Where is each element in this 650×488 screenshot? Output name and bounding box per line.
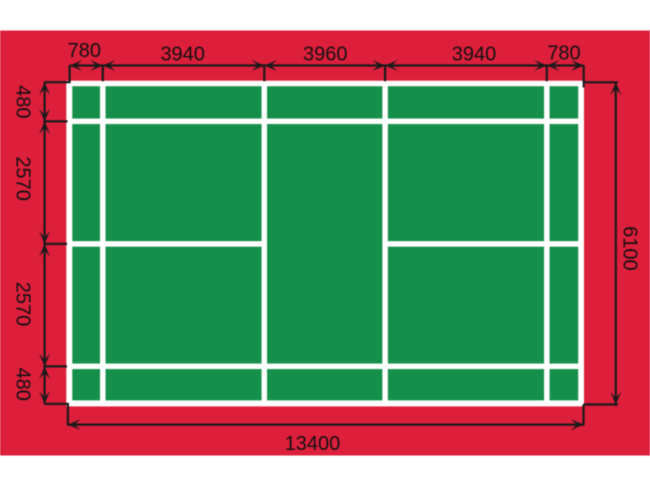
svg-text:3940: 3940 — [160, 44, 205, 66]
svg-text:3940: 3940 — [452, 44, 497, 66]
svg-text:780: 780 — [547, 43, 580, 65]
svg-text:480: 480 — [11, 368, 33, 401]
svg-text:6100: 6100 — [619, 226, 641, 271]
svg-text:2570: 2570 — [11, 282, 33, 327]
svg-text:3960: 3960 — [303, 44, 348, 66]
svg-text:2570: 2570 — [11, 156, 33, 201]
svg-text:480: 480 — [11, 85, 33, 118]
svg-text:13400: 13400 — [285, 433, 341, 455]
svg-text:780: 780 — [68, 40, 101, 62]
